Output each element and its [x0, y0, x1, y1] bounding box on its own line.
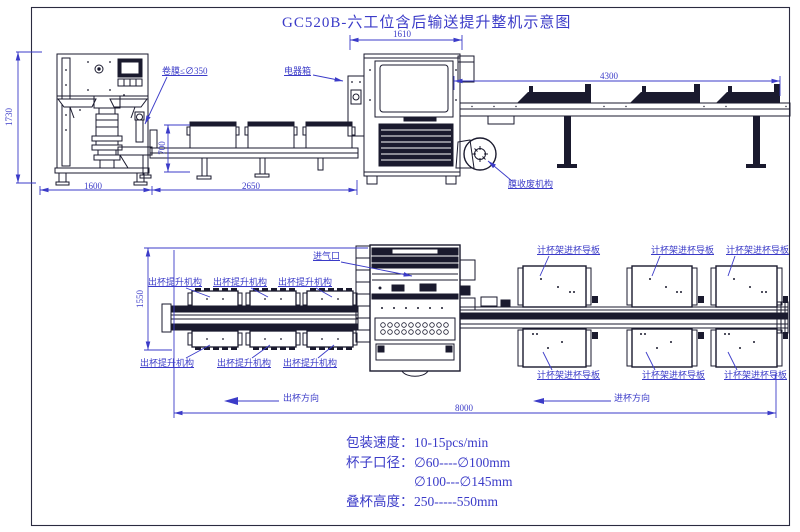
- spec-value: ∅100---∅145mm: [414, 472, 513, 492]
- guide-label-2: 计杯架进杯导板: [651, 245, 714, 255]
- lift-label-5: 出杯提升机构: [217, 358, 271, 368]
- spec-row: ∅100---∅145mm: [346, 472, 513, 492]
- spec-value: ∅60----∅100mm: [414, 453, 510, 473]
- dim-1600: 1600: [84, 181, 102, 191]
- front-mid-conveyor: [150, 122, 358, 179]
- lift-label-4: 出杯提升机构: [140, 358, 194, 368]
- plan-main-machine: [356, 245, 475, 376]
- guide-label-4: 计杯架进杯导板: [537, 370, 600, 380]
- dim-1610: 1610: [393, 29, 411, 39]
- spec-row: 杯子口径： ∅60----∅100mm: [346, 453, 513, 473]
- spec-row: 包装速度： 10-15pcs/min: [346, 433, 513, 453]
- spec-label: 包装速度：: [346, 433, 414, 453]
- cup-out-direction: 出杯方向: [283, 393, 319, 403]
- front-left-machine: [55, 54, 152, 185]
- dim-1550: 1550: [135, 284, 145, 314]
- spec-value: 10-15pcs/min: [414, 433, 488, 453]
- spec-value: 250-----550mm: [414, 492, 498, 512]
- drawing-page: GC520B-六工位含后输送提升整机示意图 卷膜≤∅350 电器箱 膜收废机构 …: [0, 0, 800, 532]
- lift-label-3: 出杯提升机构: [278, 277, 332, 287]
- dim-8000: 8000: [455, 403, 473, 413]
- cup-in-direction: 进杯方向: [614, 393, 650, 403]
- guide-label-1: 计杯架进杯导板: [537, 245, 600, 255]
- dim-2650: 2650: [242, 181, 260, 191]
- spec-row: 叠杯高度： 250-----550mm: [346, 492, 513, 512]
- plan-left-conveyor: [162, 288, 358, 350]
- dim-4300: 4300: [600, 71, 618, 81]
- plan-right-conveyor: [460, 266, 788, 367]
- spec-label: 杯子口径：: [346, 453, 414, 473]
- air-inlet-label: 进气口: [313, 251, 340, 261]
- lift-label-2: 出杯提升机构: [213, 277, 267, 287]
- electric-box-label: 电器箱: [284, 66, 311, 76]
- dim-700: 700: [157, 133, 167, 163]
- guide-label-3: 计杯架进杯导板: [726, 245, 789, 255]
- guide-label-6: 计杯架进杯导板: [724, 370, 787, 380]
- film-waste-wheel: [456, 138, 496, 170]
- spec-label: 叠杯高度：: [346, 492, 414, 512]
- front-main-machine: [348, 54, 474, 184]
- guide-label-5: 计杯架进杯导板: [642, 370, 705, 380]
- spec-block: 包装速度： 10-15pcs/min 杯子口径： ∅60----∅100mm ∅…: [346, 433, 513, 511]
- dim-1730: 1730: [4, 102, 14, 132]
- film-roll-label: 卷膜≤∅350: [162, 66, 207, 76]
- film-stacks: [517, 84, 780, 168]
- film-waste-label: 膜收废机构: [508, 179, 553, 189]
- front-right-conveyor: [456, 84, 790, 170]
- lift-label-6: 出杯提升机构: [283, 358, 337, 368]
- lift-label-1: 出杯提升机构: [148, 277, 202, 287]
- spec-label: [346, 472, 414, 492]
